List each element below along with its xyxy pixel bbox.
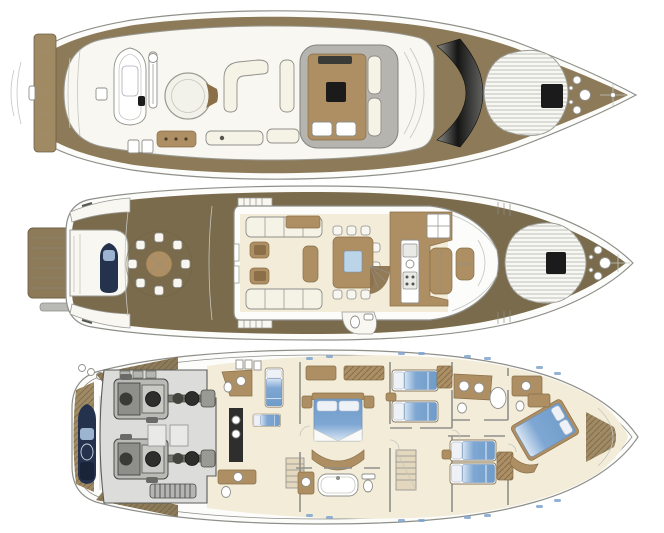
helm-console xyxy=(326,82,346,102)
master-toilet xyxy=(364,480,373,492)
salon-door xyxy=(234,244,239,261)
yacht-deck-plans xyxy=(0,0,664,533)
deck-plan-canvas xyxy=(0,0,664,533)
master-bed xyxy=(312,393,364,441)
guest-sink xyxy=(522,382,531,391)
vip-dresser xyxy=(528,394,550,407)
salon-armchair xyxy=(250,242,269,258)
crew-bunk xyxy=(253,414,281,427)
deck-flybridge xyxy=(11,11,636,179)
hardtop-dinette xyxy=(300,45,398,148)
stern-contour-lines xyxy=(11,62,21,124)
guest-toilet xyxy=(458,403,467,413)
master-sink xyxy=(302,478,311,487)
aft-deck-round-dining xyxy=(126,231,192,297)
deck-hatch xyxy=(546,252,566,274)
helm-instruments xyxy=(318,56,352,64)
guest-shower xyxy=(490,388,506,409)
deck-hatch xyxy=(541,84,563,108)
galley xyxy=(390,212,452,306)
tender-crane xyxy=(149,52,158,108)
master-dresser xyxy=(306,366,336,380)
salon-console xyxy=(303,246,318,282)
guest-sink xyxy=(474,383,484,393)
deck-lower xyxy=(72,350,638,524)
deck-main xyxy=(28,186,633,340)
main-foredeck-sunpad xyxy=(505,223,586,303)
guest-sink xyxy=(459,381,469,391)
galley-stove xyxy=(403,272,417,289)
helm-seat xyxy=(368,98,381,136)
foredeck-sunpad xyxy=(484,50,568,135)
guest-toilet xyxy=(516,401,524,411)
salon-cabinet xyxy=(286,216,320,228)
crew-bunk xyxy=(265,368,283,407)
engine-room xyxy=(100,370,216,503)
tender-on-chocks xyxy=(114,48,146,125)
salon-door xyxy=(234,266,239,283)
crew-toilet xyxy=(224,382,232,392)
salon-armchair xyxy=(250,268,269,284)
deck-box xyxy=(96,88,107,100)
exhaust-muffler xyxy=(150,484,196,498)
staircase-lobby xyxy=(396,450,416,490)
helm-seat xyxy=(368,56,381,94)
crew-sink xyxy=(237,377,246,386)
tender-garage xyxy=(70,230,128,296)
aft-sunpad-overhang xyxy=(29,34,56,152)
